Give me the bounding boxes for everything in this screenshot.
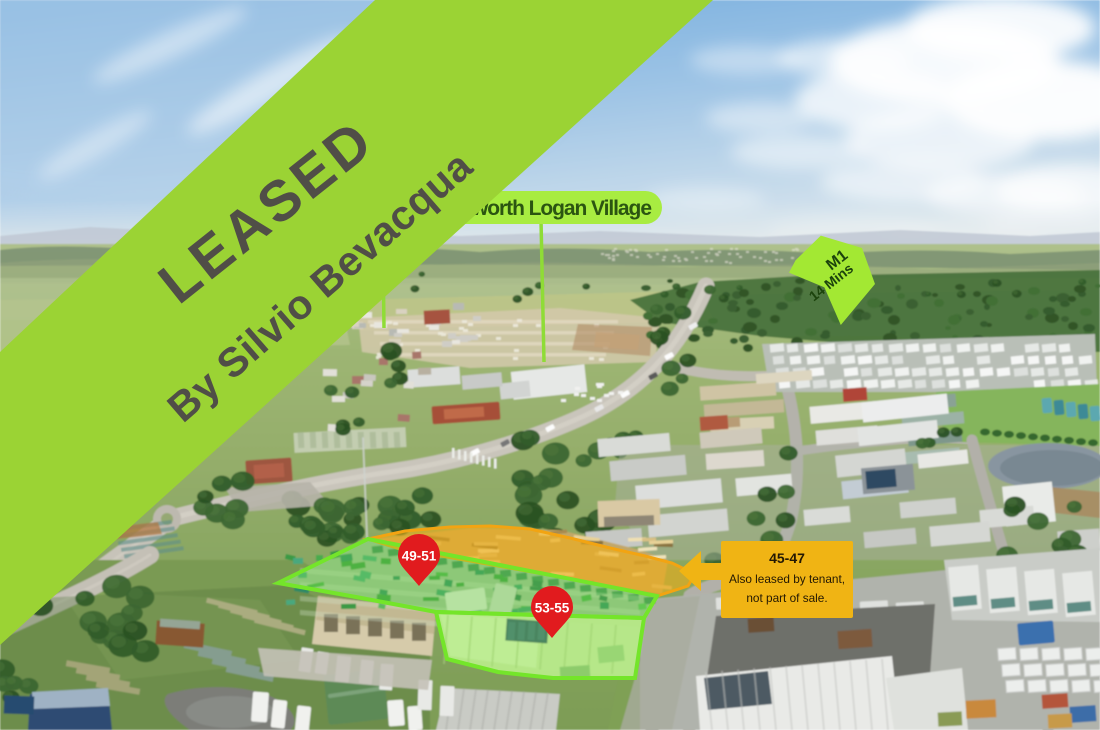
svg-text:49-51: 49-51 [402, 549, 437, 564]
svg-text:Also leased by tenant,: Also leased by tenant, [729, 572, 845, 586]
svg-text:53-55: 53-55 [535, 601, 570, 616]
svg-text:worth Logan Village: worth Logan Village [471, 197, 652, 220]
svg-text:45-47: 45-47 [769, 550, 805, 566]
svg-text:not part of sale.: not part of sale. [746, 591, 827, 605]
